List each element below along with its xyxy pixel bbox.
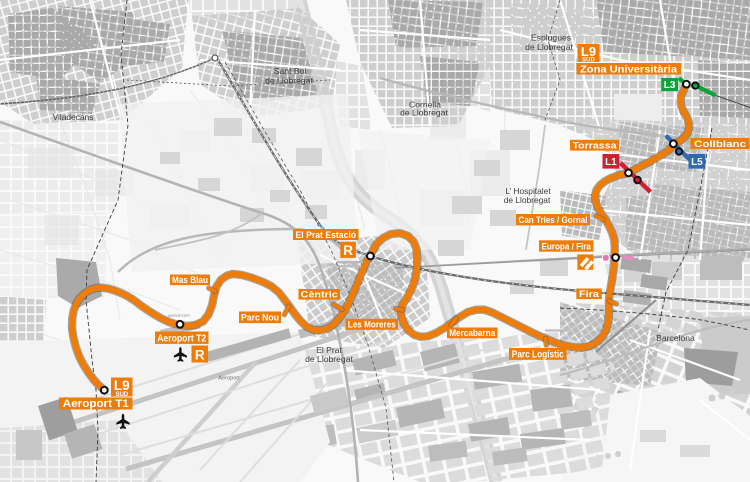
svg-text:de Llobregat: de Llobregat	[525, 42, 573, 52]
svg-text:Barcelona: Barcelona	[656, 333, 695, 343]
svg-text:AEROPORT: AEROPORT	[168, 313, 191, 318]
svg-text:Can Tries / Gornal: Can Tries / Gornal	[519, 215, 588, 226]
svg-text:de Llobregat: de Llobregat	[265, 76, 313, 86]
svg-text:R: R	[195, 347, 205, 362]
svg-text:Parc Logístic: Parc Logístic	[512, 349, 564, 360]
svg-text:Fira: Fira	[579, 289, 600, 300]
svg-text:R: R	[343, 243, 353, 258]
svg-text:Les Moreres: Les Moreres	[348, 320, 396, 331]
svg-text:El Prat Estació: El Prat Estació	[296, 230, 357, 241]
svg-text:Sant Boi: Sant Boi	[274, 66, 307, 76]
svg-text:Mas Blau: Mas Blau	[172, 275, 208, 286]
svg-text:L5: L5	[691, 157, 703, 168]
svg-text:Mercabarna: Mercabarna	[449, 328, 496, 339]
svg-text:Cèntric: Cèntric	[301, 290, 339, 301]
svg-text:Esplugues: Esplugues	[531, 33, 571, 43]
svg-text:Parc Nou: Parc Nou	[241, 313, 279, 324]
svg-text:de Llobregat: de Llobregat	[400, 108, 448, 118]
svg-text:Aeroport T2: Aeroport T2	[157, 333, 206, 344]
svg-text:de Llobregat: de Llobregat	[305, 354, 353, 364]
svg-text:L1: L1	[605, 157, 617, 168]
svg-text:Zona Universitària: Zona Universitària	[580, 64, 677, 75]
svg-text:L3: L3	[664, 80, 676, 91]
svg-text:de Llobregat: de Llobregat	[504, 195, 551, 205]
svg-text:Collblanc: Collblanc	[694, 139, 747, 150]
svg-text:Torrassa: Torrassa	[573, 141, 618, 152]
svg-text:Aeroport: Aeroport	[218, 376, 240, 382]
svg-text:Viladecans: Viladecans	[53, 112, 94, 122]
svg-text:SUD: SUD	[115, 392, 128, 398]
svg-text:Europa / Fira: Europa / Fira	[541, 241, 591, 252]
svg-text:Aeroport T1: Aeroport T1	[63, 398, 129, 410]
svg-text:SUD: SUD	[582, 57, 595, 63]
